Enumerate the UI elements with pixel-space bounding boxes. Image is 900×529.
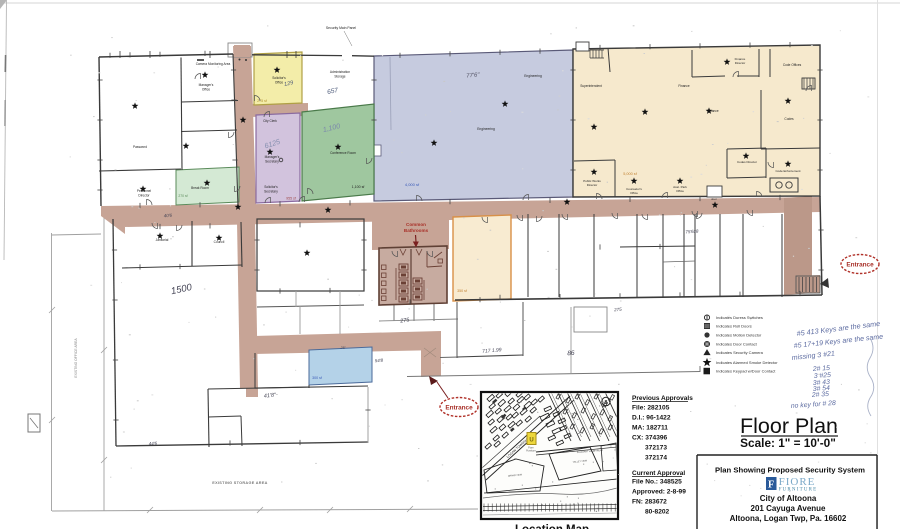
svg-text:Entrance: Entrance (846, 262, 874, 269)
svg-text:Plan Showing Proposed Security: Plan Showing Proposed Security System (715, 466, 865, 475)
svg-text:Storage: Storage (334, 75, 345, 79)
svg-text:Indicates Alarmed Smoke Detect: Indicates Alarmed Smoke Detector (716, 360, 778, 365)
svg-text:File: 282105: File: 282105 (632, 405, 670, 412)
svg-text:Finance: Finance (678, 84, 690, 88)
svg-text:Secretary: Secretary (264, 190, 278, 194)
svg-text:300 sf: 300 sf (312, 376, 322, 380)
svg-text:372173: 372173 (645, 445, 667, 452)
svg-text:Common: Common (406, 222, 426, 227)
svg-text:Office: Office (630, 191, 638, 195)
svg-text:Secretary: Secretary (265, 160, 279, 164)
svg-text:Current Approval: Current Approval (632, 470, 685, 477)
svg-text:Indicates Door Contact: Indicates Door Contact (716, 342, 758, 347)
svg-text:40'6: 40'6 (163, 213, 172, 219)
svg-text:Break Room: Break Room (191, 186, 209, 190)
svg-text:Indicates Roll Doors: Indicates Roll Doors (716, 324, 752, 329)
svg-text:Indicates Duress Switches: Indicates Duress Switches (716, 315, 763, 320)
svg-text:City Clerk: City Clerk (263, 119, 277, 123)
svg-text:Superintendent: Superintendent (580, 84, 602, 88)
svg-text:Code Offices: Code Offices (783, 63, 802, 67)
svg-text:201 Cayuga Avenue: 201 Cayuga Avenue (751, 504, 827, 513)
svg-text:657: 657 (327, 87, 339, 96)
svg-text:Approved: 2-8-99: Approved: 2-8-99 (632, 489, 686, 496)
svg-text:372174: 372174 (645, 455, 667, 462)
svg-text:717 1.99: 717 1.99 (482, 347, 502, 355)
svg-text:Engineering: Engineering (524, 74, 542, 78)
svg-text:Camera Monitoring Area: Camera Monitoring Area (196, 62, 231, 66)
svg-text:Indicates Security Camera: Indicates Security Camera (716, 350, 764, 355)
svg-text:Janitorial: Janitorial (156, 238, 169, 242)
svg-text:Solicitor's: Solicitor's (264, 185, 278, 189)
svg-text:80-8202: 80-8202 (645, 509, 670, 516)
svg-text:missing 3 #21: missing 3 #21 (791, 351, 835, 362)
svg-text:Entrance: Entrance (445, 405, 473, 412)
svg-text:Office: Office (202, 88, 210, 92)
svg-text:1,100 sf: 1,100 sf (352, 185, 365, 189)
svg-text:350 sf: 350 sf (457, 289, 467, 293)
svg-text:File No.: 348525: File No.: 348525 (632, 479, 682, 486)
svg-text:MA: 182711: MA: 182711 (632, 425, 668, 432)
svg-text:Code Enforcement: Code Enforcement (775, 169, 800, 173)
svg-text:86: 86 (567, 350, 575, 357)
svg-text:Password: Password (133, 145, 147, 149)
svg-text:Manager's: Manager's (199, 83, 214, 87)
svg-text:EXISTING STORAGE AREA: EXISTING STORAGE AREA (212, 481, 267, 485)
svg-text:Floor Plan: Floor Plan (740, 414, 838, 438)
svg-text:75'6x8: 75'6x8 (685, 229, 699, 235)
svg-text:Codes Director: Codes Director (737, 160, 757, 164)
svg-text:2# 35: 2# 35 (811, 391, 830, 399)
svg-text:FURNITURE: FURNITURE (779, 488, 818, 493)
svg-text:Conference Room: Conference Room (330, 151, 356, 155)
svg-text:270 sf: 270 sf (178, 194, 187, 198)
svg-text:275: 275 (399, 317, 411, 324)
svg-text:Manager's: Manager's (265, 155, 280, 159)
svg-text:EXISTING OFFICE AREA: EXISTING OFFICE AREA (74, 338, 78, 378)
svg-text:Altoona, Logan Twp, Pa. 16602: Altoona, Logan Twp, Pa. 16602 (730, 514, 847, 523)
svg-text:door: door (711, 197, 717, 201)
svg-text:FIORE: FIORE (779, 476, 816, 488)
svg-text:no key for # 28: no key for # 28 (791, 400, 837, 410)
svg-text:U: U (529, 438, 533, 444)
svg-text:275: 275 (613, 307, 622, 313)
svg-text:Indicates Keypad w/Door Contac: Indicates Keypad w/Door Contact (716, 369, 776, 374)
svg-text:CX: 374396: CX: 374396 (632, 435, 668, 442)
svg-text:4,000 sf: 4,000 sf (405, 182, 420, 187)
svg-text:25': 25' (340, 346, 346, 350)
svg-text:Scale: 1" = 10'-0": Scale: 1" = 10'-0" (740, 436, 836, 450)
svg-text:Solicitor's: Solicitor's (272, 76, 286, 80)
svg-text:City of Altoona: City of Altoona (760, 494, 817, 503)
svg-text:275 sf: 275 sf (257, 99, 267, 103)
svg-text:955 sf: 955 sf (286, 197, 296, 201)
svg-text:Office: Office (275, 81, 283, 85)
svg-text:77'6": 77'6" (466, 72, 481, 79)
svg-text:Director: Director (138, 194, 150, 198)
svg-text:1500: 1500 (170, 282, 194, 297)
svg-text:Location Map: Location Map (515, 524, 589, 529)
svg-text:54'8: 54'8 (375, 358, 384, 364)
svg-text:Director: Director (735, 61, 746, 65)
svg-text:5,000 sf: 5,000 sf (623, 172, 637, 176)
svg-text:Office: Office (676, 189, 684, 193)
svg-text:Council: Council (214, 240, 225, 244)
svg-text:8: 8 (605, 400, 608, 406)
svg-text:Indicates Motion Detector: Indicates Motion Detector (716, 333, 762, 338)
svg-text:41'8": 41'8" (264, 392, 278, 399)
svg-text:Administration: Administration (330, 70, 350, 74)
svg-text:Codes: Codes (784, 117, 794, 121)
svg-text:Security Main Panel: Security Main Panel (326, 26, 356, 30)
svg-text:Furniture: Furniture (526, 450, 536, 453)
svg-text:Previous Approvals: Previous Approvals (632, 395, 693, 402)
svg-text:Engineering: Engineering (477, 127, 495, 131)
svg-text:D.I.: 96-1422: D.I.: 96-1422 (632, 415, 671, 422)
svg-text:FN: 283672: FN: 283672 (632, 499, 667, 506)
svg-text:44'6: 44'6 (149, 441, 158, 447)
svg-text:Bathrooms: Bathrooms (404, 228, 429, 233)
svg-text:F: F (768, 480, 774, 491)
svg-text:Director: Director (587, 183, 598, 187)
